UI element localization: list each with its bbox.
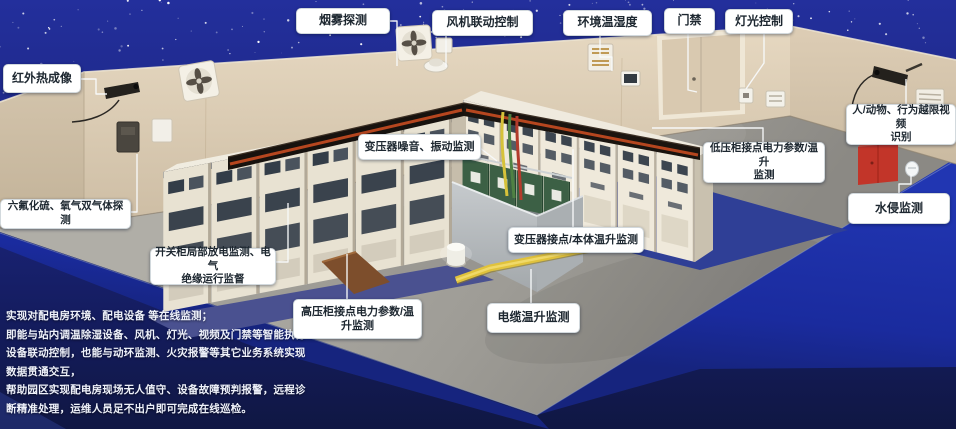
- callout-cable-temp-rise: 电缆温升监测: [487, 303, 580, 333]
- gas-detector-box: [117, 122, 139, 152]
- callout-transformer-joint-body-temp: 变压器接点/本体温升监测: [508, 227, 644, 253]
- callout-intrusion-video-recognition: 人/动物、行为越限视频 识别: [846, 104, 956, 145]
- callout-fan-linkage-control: 风机联动控制: [432, 10, 533, 36]
- callout-transformer-noise-vibration: 变压器噪音、振动监测: [358, 134, 481, 160]
- door-handle: [692, 77, 696, 81]
- door: [657, 30, 745, 120]
- exhaust-fan-left: [178, 60, 220, 102]
- door-access-panel: [739, 88, 753, 103]
- callout-light-control: 灯光控制: [725, 9, 793, 34]
- callout-lv-cabinet-power-temp: 低压柜接点电力参数/温升 监测: [703, 142, 825, 183]
- wall-junction-box: [152, 119, 172, 142]
- callout-smoke-detection: 烟雾探测: [296, 8, 390, 34]
- callout-sf6-o2-gas-detection: 六氟化硫、氧气双气体探测: [0, 199, 131, 229]
- callout-door-access: 门禁: [664, 8, 715, 34]
- fan-control-box: [436, 38, 452, 53]
- callout-infrared-thermal-imaging: 红外热成像: [3, 64, 81, 93]
- fire-cabinet: [858, 138, 902, 185]
- callout-hv-cabinet-power-temp: 高压柜接点电力参数/温 升监测: [293, 299, 422, 339]
- water-sensor: [906, 162, 919, 177]
- temp-humidity-display: [621, 71, 640, 86]
- exhaust-fan-back: [396, 25, 433, 62]
- callout-water-intrusion-monitoring: 水侵监测: [848, 193, 950, 224]
- callout-env-temp-humidity: 环境温湿度: [563, 10, 652, 36]
- power-room-monitoring-diagram: 烟雾探测 风机联动控制 环境温湿度 门禁 灯光控制 红外热成像 六氟化硫、氧气双…: [0, 0, 956, 429]
- light-switch-panel: [766, 91, 785, 107]
- callout-switchgear-partial-discharge: 开关柜局部放电监测、电气 绝缘运行监督: [150, 248, 276, 285]
